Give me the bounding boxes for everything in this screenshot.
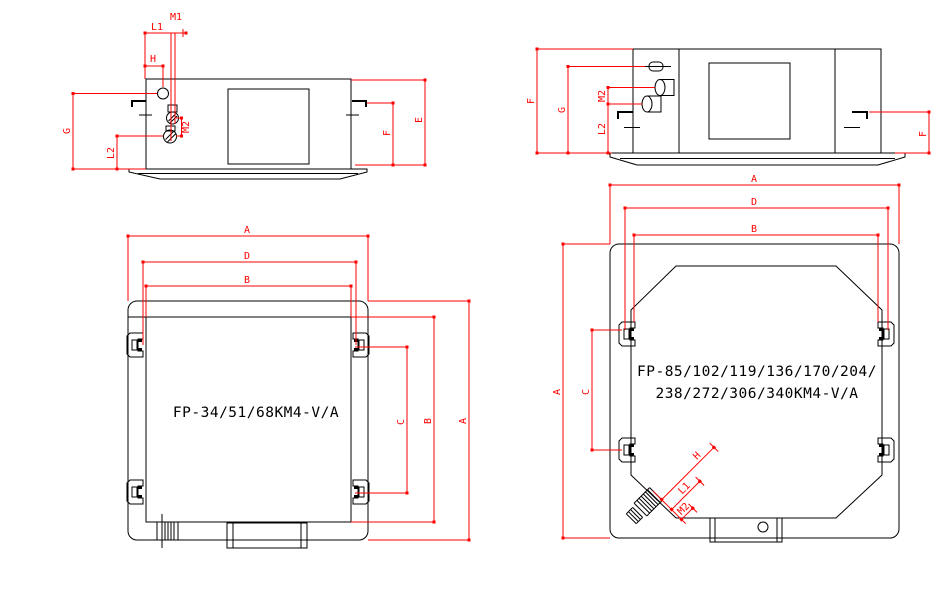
ceiling-panel bbox=[129, 169, 367, 179]
knockout-hole bbox=[758, 522, 768, 532]
dim-label-b: B bbox=[244, 275, 250, 286]
dim-g: G bbox=[557, 67, 645, 154]
model-label: FP-34/51/68KM4-V/A bbox=[173, 405, 339, 421]
ceiling-panel bbox=[610, 153, 905, 165]
fan-coil-dimension-drawing: L1 M1 H G L2 M2 F bbox=[0, 0, 951, 594]
dim-label-h: H bbox=[150, 54, 156, 65]
dim-f-right: F bbox=[367, 103, 393, 165]
dim-top-d: D bbox=[625, 197, 888, 330]
pipe-connection-lower bbox=[164, 126, 177, 143]
dim-label-f-left: F bbox=[526, 98, 537, 104]
dim-e-right: E bbox=[351, 80, 425, 165]
hanger-bracket-right bbox=[844, 112, 867, 128]
dim-l2: L2 bbox=[597, 104, 608, 153]
dim-right-b: B bbox=[351, 317, 434, 522]
mounting-bracket bbox=[127, 333, 143, 357]
dim-label-f-right: F bbox=[918, 131, 929, 137]
corner-pipe-threads bbox=[625, 488, 662, 525]
drawing-sheet: L1 M1 H G L2 M2 F bbox=[0, 0, 951, 594]
pipe-cylinder-middle bbox=[655, 80, 674, 96]
dim-label-l2: L2 bbox=[106, 147, 117, 159]
dim-f-right: F bbox=[869, 112, 929, 153]
mounting-bracket bbox=[353, 480, 369, 504]
dim-h: H bbox=[145, 54, 163, 87]
dim-label-m2: M2 bbox=[597, 90, 608, 102]
corner-pipe-dims: M2 L1 H bbox=[653, 439, 738, 524]
dim-top-d: D bbox=[143, 251, 356, 345]
dim-label-g: G bbox=[557, 107, 568, 113]
model-label-line1: FP-85/102/119/136/170/204/ bbox=[637, 364, 877, 380]
mounting-bracket bbox=[127, 480, 143, 504]
dim-top-a: A bbox=[128, 225, 368, 301]
dim-label-d: D bbox=[244, 251, 250, 262]
drain-pipe-stub bbox=[157, 514, 178, 548]
pipe-stub-top bbox=[641, 62, 671, 71]
bottom-junction-box bbox=[227, 523, 307, 548]
plan-view-large-unit: FP-85/102/119/136/170/204/ 238/272/306/3… bbox=[552, 174, 899, 542]
dim-label-c: C bbox=[396, 419, 407, 425]
drain-hole bbox=[158, 88, 169, 99]
dim-right-c: C bbox=[355, 347, 407, 493]
dim-top-b: B bbox=[146, 275, 351, 317]
dim-label-d: D bbox=[751, 197, 757, 208]
dim-label-l2: L2 bbox=[597, 123, 608, 135]
hanger-bracket-left bbox=[132, 101, 152, 115]
electric-box-outline bbox=[709, 63, 790, 139]
unit-body-outline bbox=[633, 49, 881, 153]
electric-box-outline bbox=[228, 89, 309, 164]
dim-label-a: A bbox=[244, 225, 250, 236]
dim-l2: L2 bbox=[106, 136, 163, 169]
model-label-line2: 238/272/306/340KM4-V/A bbox=[655, 386, 858, 402]
dim-label-b-right: B bbox=[423, 418, 434, 424]
mounting-bracket bbox=[353, 333, 369, 357]
side-view-large-unit: F G M2 L2 F bbox=[526, 49, 929, 165]
dim-label-e: E bbox=[414, 117, 425, 123]
hanger-bracket-left bbox=[618, 112, 640, 128]
side-view-small-unit: L1 M1 H G L2 M2 F bbox=[62, 12, 425, 179]
dim-label-b: B bbox=[751, 224, 757, 235]
dim-label-c: C bbox=[581, 389, 592, 395]
dim-top-b: B bbox=[634, 224, 878, 322]
dim-label-l1: L1 bbox=[151, 22, 163, 33]
dim-label-m2: M2 bbox=[181, 121, 192, 133]
dim-label-g: G bbox=[62, 128, 73, 134]
dim-label-a-right: A bbox=[458, 418, 469, 424]
unit-body-outline bbox=[146, 79, 351, 169]
dim-top-l1-m1: L1 M1 bbox=[145, 12, 186, 141]
dim-label-m1: M1 bbox=[170, 12, 182, 23]
mounting-bracket bbox=[619, 322, 635, 346]
plan-view-small-unit: FP-34/51/68KM4-V/A A D B C bbox=[127, 225, 469, 548]
dim-label-a: A bbox=[751, 174, 757, 185]
hanger-bracket-right bbox=[346, 101, 366, 115]
dim-label-f: F bbox=[382, 130, 393, 136]
dim-label-a-left: A bbox=[552, 389, 563, 395]
dim-left-c: C bbox=[581, 330, 622, 450]
mounting-bracket bbox=[878, 438, 894, 462]
dim-f-left: F bbox=[526, 49, 633, 153]
dim-right-a: A bbox=[368, 301, 469, 540]
pipe-connection-upper bbox=[167, 105, 179, 124]
mounting-bracket bbox=[878, 322, 894, 346]
pipe-cylinder-lower bbox=[642, 96, 661, 112]
